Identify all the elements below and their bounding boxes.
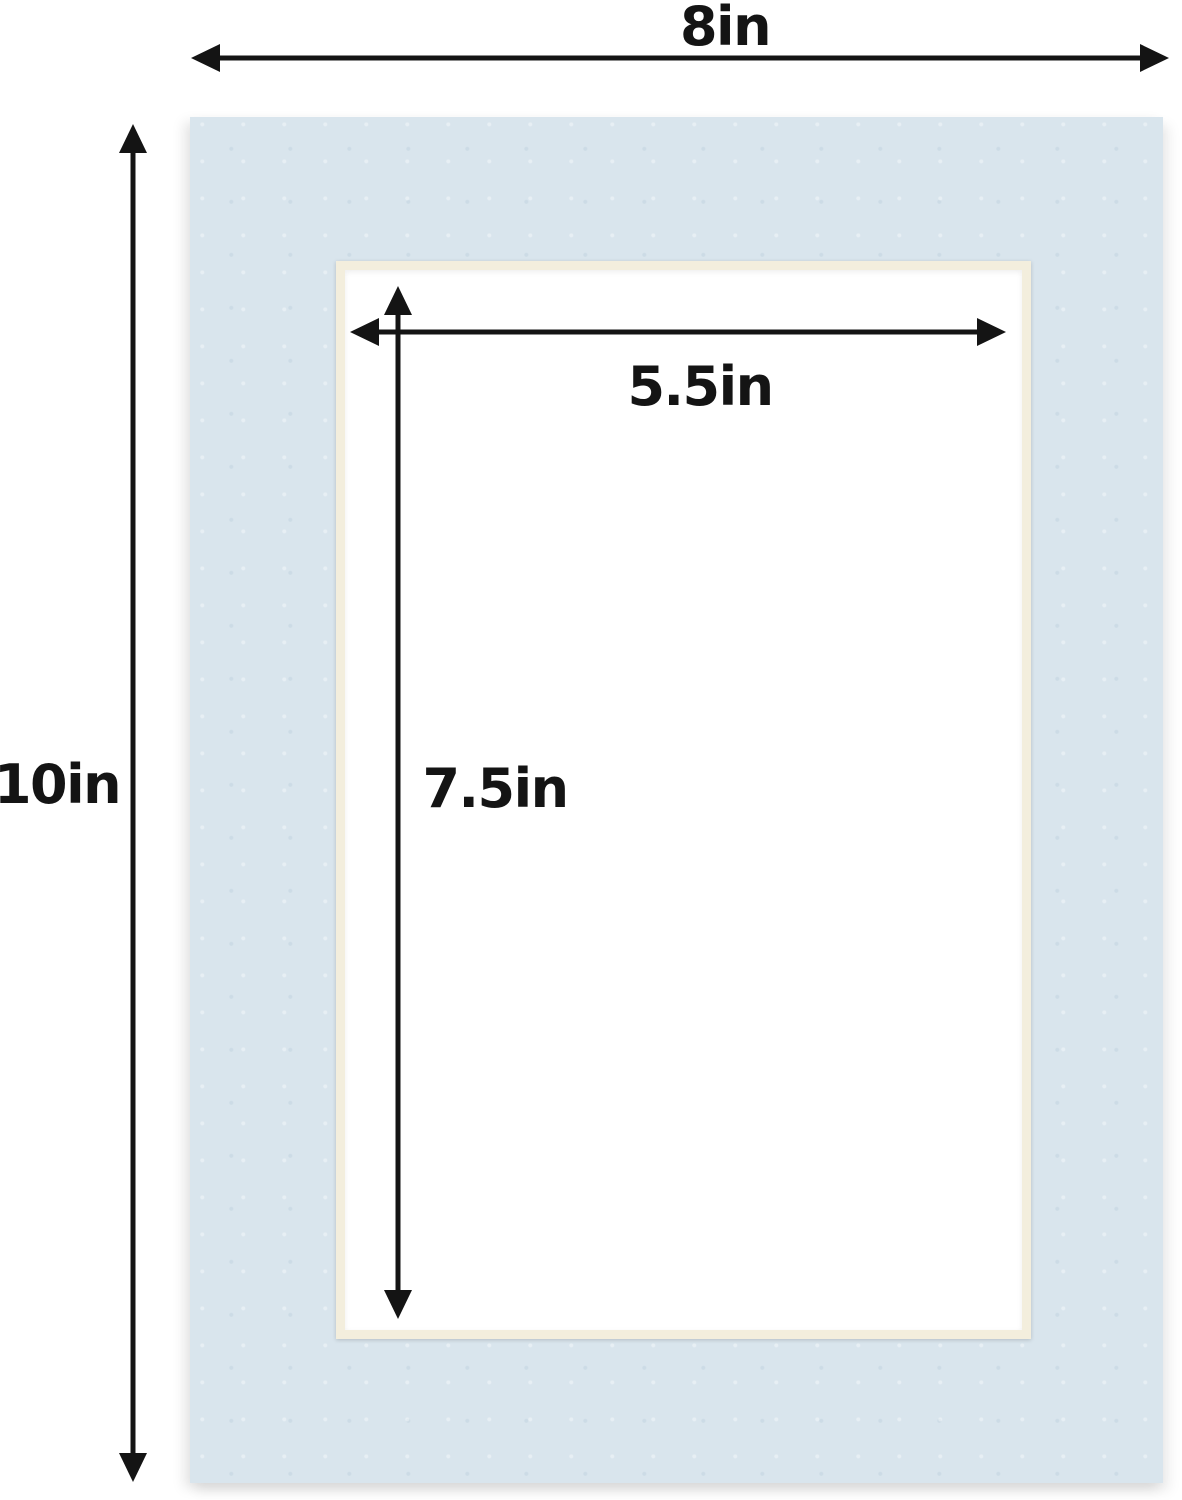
outer-width-label: 8in bbox=[680, 0, 770, 54]
arrowhead-right-icon bbox=[1140, 44, 1169, 72]
arrowhead-bottom-icon bbox=[119, 1453, 147, 1482]
opening-height-label: 7.5in bbox=[422, 762, 567, 816]
opening-width-label: 5.5in bbox=[627, 360, 772, 414]
opening-height-arrow bbox=[383, 285, 413, 1320]
outer-height-label: 10in bbox=[0, 758, 120, 812]
opening-width-arrow bbox=[349, 317, 1007, 347]
arrowhead-right-icon bbox=[977, 318, 1006, 346]
arrowhead-bottom-icon bbox=[384, 1290, 412, 1319]
mat-dimension-diagram: 8in 10in 5.5in 7.5in bbox=[0, 0, 1182, 1500]
outer-height-arrow bbox=[118, 123, 148, 1483]
